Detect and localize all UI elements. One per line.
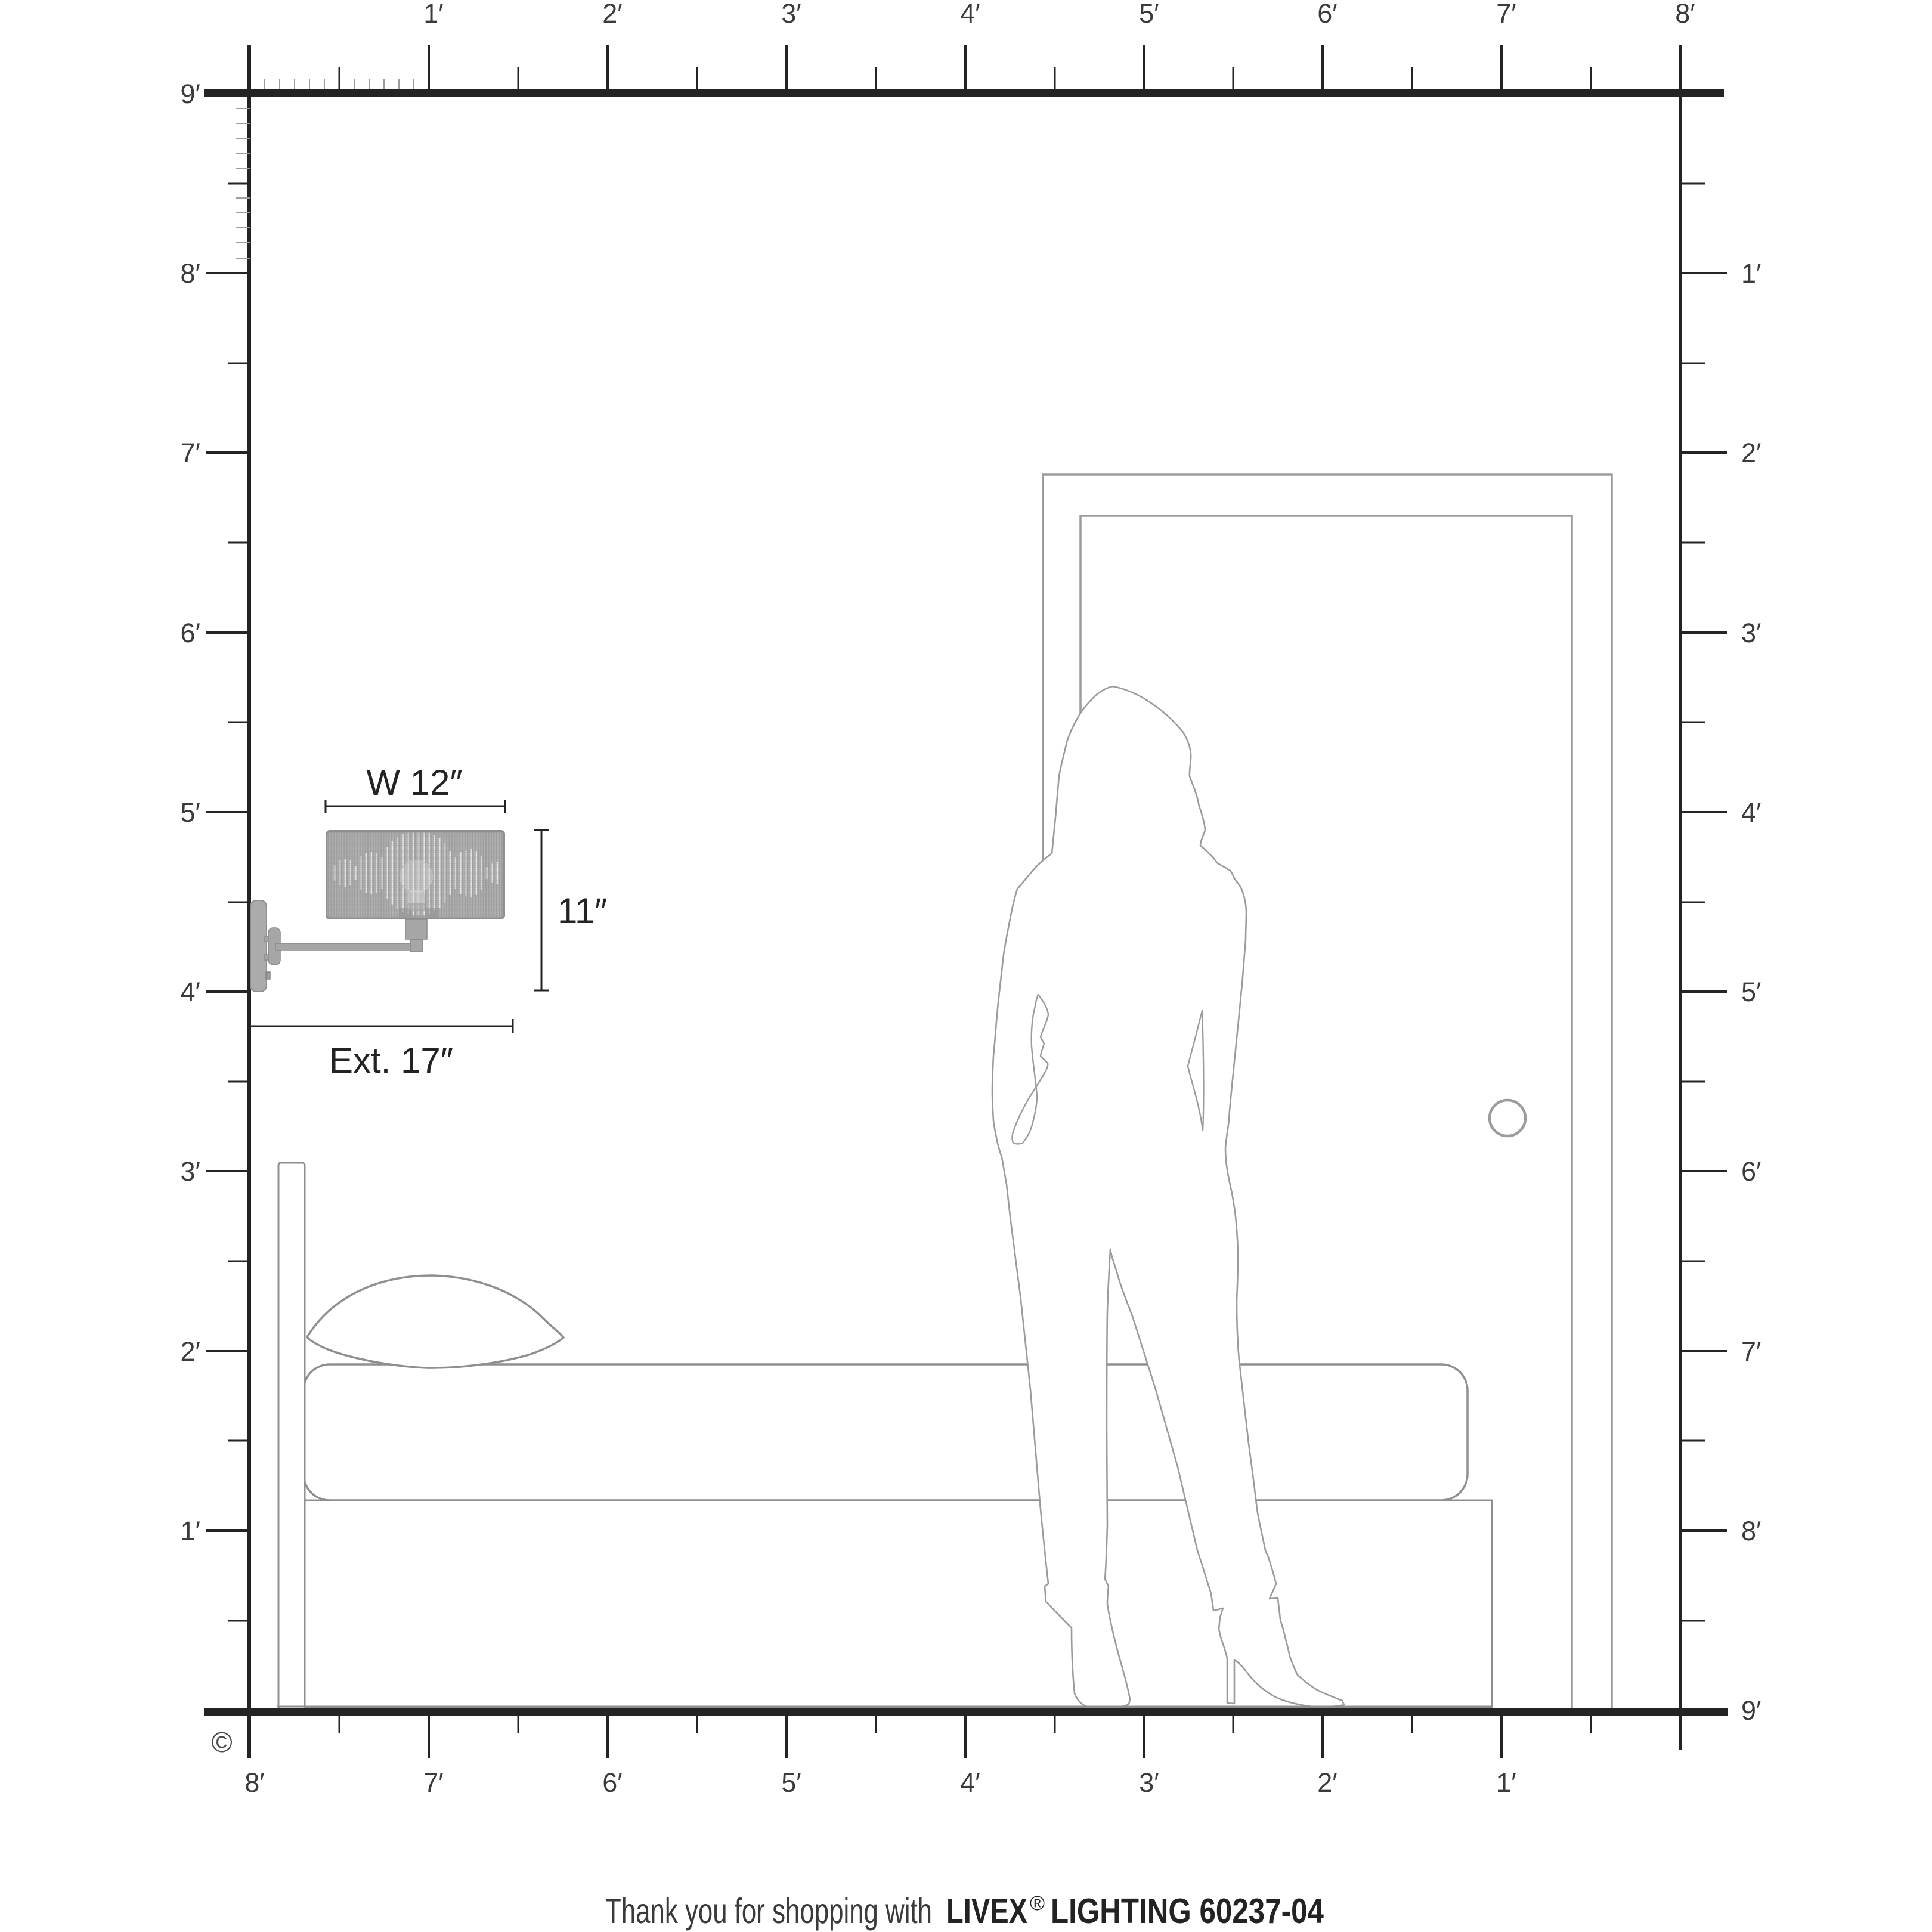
svg-text:2′: 2′ — [1741, 438, 1761, 468]
svg-text:1′: 1′ — [423, 0, 443, 29]
svg-text:3′: 3′ — [781, 0, 801, 29]
svg-text:LIGHTING 60237-04: LIGHTING 60237-04 — [1051, 1891, 1324, 1931]
svg-text:3′: 3′ — [1139, 1767, 1159, 1798]
svg-text:6′: 6′ — [602, 1767, 622, 1798]
svg-text:9′: 9′ — [1741, 1695, 1761, 1726]
svg-text:7′: 7′ — [181, 438, 200, 468]
svg-text:7′: 7′ — [1496, 0, 1516, 29]
svg-text:6′: 6′ — [181, 618, 200, 648]
svg-text:3′: 3′ — [181, 1156, 200, 1187]
svg-text:7′: 7′ — [1741, 1336, 1761, 1367]
svg-text:2′: 2′ — [1317, 1767, 1337, 1798]
svg-text:4′: 4′ — [960, 1767, 980, 1798]
svg-text:LIVEX: LIVEX — [946, 1891, 1027, 1931]
svg-text:1′: 1′ — [1741, 258, 1761, 289]
svg-text:5′: 5′ — [1139, 0, 1159, 29]
svg-text:4′: 4′ — [960, 0, 980, 29]
svg-text:7′: 7′ — [423, 1767, 443, 1798]
svg-text:11″: 11″ — [558, 891, 608, 931]
svg-text:2′: 2′ — [181, 1336, 200, 1367]
svg-text:2′: 2′ — [602, 0, 622, 29]
svg-text:®: ® — [1030, 1892, 1045, 1915]
svg-text:6′: 6′ — [1741, 1156, 1761, 1187]
svg-text:1′: 1′ — [1496, 1767, 1516, 1798]
svg-text:8′: 8′ — [181, 258, 200, 289]
svg-text:9′: 9′ — [181, 79, 200, 109]
svg-text:8′: 8′ — [244, 1767, 264, 1798]
svg-text:4′: 4′ — [1741, 797, 1761, 828]
svg-text:5′: 5′ — [1741, 977, 1761, 1007]
svg-text:W 12″: W 12″ — [366, 763, 462, 803]
svg-text:©: © — [211, 1727, 232, 1758]
svg-text:1′: 1′ — [181, 1516, 200, 1546]
svg-text:5′: 5′ — [781, 1767, 801, 1798]
svg-text:6′: 6′ — [1317, 0, 1337, 29]
svg-text:8′: 8′ — [1675, 0, 1695, 29]
svg-text:8′: 8′ — [1741, 1516, 1761, 1546]
svg-text:4′: 4′ — [181, 977, 200, 1007]
svg-text:Thank you for shopping with: Thank you for shopping with — [605, 1891, 932, 1931]
svg-text:3′: 3′ — [1741, 618, 1761, 648]
svg-text:5′: 5′ — [181, 797, 200, 828]
svg-text:Ext. 17″: Ext. 17″ — [329, 1041, 453, 1080]
